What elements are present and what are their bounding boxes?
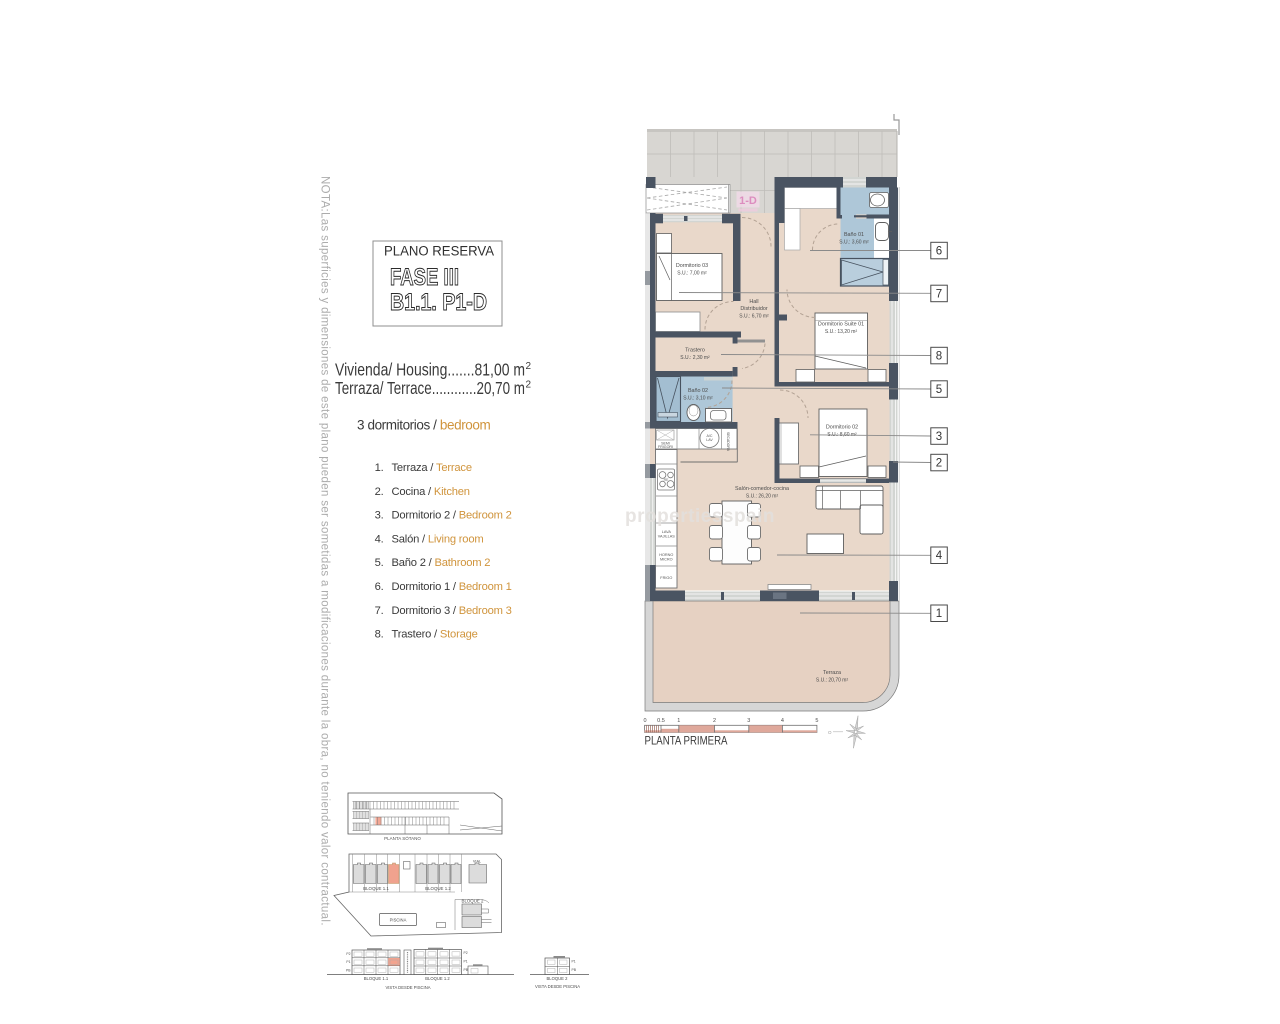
svg-text:0: 0 [643, 718, 646, 724]
svg-text:Dormitorio 2 / Bedroom 2: Dormitorio 2 / Bedroom 2 [392, 510, 512, 522]
svg-text:Terraza/ Terrace............20: Terraza/ Terrace............20,70 m [335, 378, 525, 398]
svg-text:1: 1 [677, 718, 680, 724]
svg-text:Dormitorio 02: Dormitorio 02 [826, 425, 858, 431]
svg-text:1-D: 1-D [739, 195, 757, 207]
svg-text:VISTA DESDE PISCINA: VISTA DESDE PISCINA [535, 984, 580, 989]
svg-text:BLOQUE 1.1: BLOQUE 1.1 [364, 976, 389, 981]
svg-text:B1.1. P1-D: B1.1. P1-D [390, 289, 487, 316]
svg-text:BLOQUE 1.2: BLOQUE 1.2 [425, 886, 451, 891]
svg-text:S.U.: 26,20 m²: S.U.: 26,20 m² [746, 494, 779, 500]
svg-text:4.: 4. [375, 533, 384, 545]
svg-text:P1: P1 [572, 960, 576, 964]
svg-text:6.: 6. [375, 581, 384, 593]
svg-text:Distribuidor: Distribuidor [740, 306, 767, 312]
svg-text:Salón-comedor-cocina: Salón-comedor-cocina [735, 486, 789, 492]
svg-text:VISTA DESDE PISCINA: VISTA DESDE PISCINA [385, 985, 430, 990]
svg-text:5: 5 [815, 718, 818, 724]
svg-text:P1: P1 [464, 960, 468, 964]
svg-text:Hall: Hall [749, 299, 758, 305]
svg-text:Baño 2 / Bathroom 2: Baño 2 / Bathroom 2 [392, 557, 491, 569]
svg-text:4: 4 [781, 718, 784, 724]
svg-text:P2: P2 [464, 951, 468, 955]
svg-text:BLOQUE 2: BLOQUE 2 [462, 899, 485, 904]
svg-text:2.: 2. [375, 486, 384, 498]
svg-text:P2: P2 [346, 952, 350, 956]
svg-text:7: 7 [936, 288, 942, 300]
svg-text:S.U.: 13,20 m²: S.U.: 13,20 m² [825, 329, 858, 335]
svg-text:5: 5 [936, 384, 942, 396]
svg-text:RE: RE [664, 478, 669, 482]
svg-text:PLANTA PRIMERA: PLANTA PRIMERA [645, 734, 728, 748]
svg-text:O: O [828, 730, 832, 735]
svg-text:Dormitorio Suite 01: Dormitorio Suite 01 [818, 322, 864, 328]
svg-text:Trastero: Trastero [685, 348, 705, 354]
svg-text:0.5: 0.5 [657, 718, 665, 724]
svg-text:PLANO RESERVA: PLANO RESERVA [384, 244, 494, 259]
svg-text:LAVA: LAVA [662, 530, 672, 534]
svg-text:PISCINA: PISCINA [390, 918, 407, 923]
svg-text:4: 4 [936, 550, 943, 562]
svg-text:S.U.: 6,70 m²: S.U.: 6,70 m² [739, 314, 769, 320]
svg-text:SECADORA: SECADORA [726, 432, 730, 452]
svg-text:FRIGO: FRIGO [660, 576, 672, 580]
svg-text:VAJILLAS: VAJILLAS [658, 535, 675, 539]
svg-text:Dormitorio 1 / Bedroom 1: Dormitorio 1 / Bedroom 1 [392, 581, 512, 593]
svg-text:BLOQUE 2: BLOQUE 2 [547, 976, 569, 981]
svg-text:5.: 5. [375, 557, 384, 569]
svg-text:2: 2 [526, 380, 532, 391]
svg-text:Vivienda/ Housing.......81,00: Vivienda/ Housing.......81,00 m [335, 360, 525, 380]
svg-text:BLOQUE 1.2: BLOQUE 1.2 [425, 976, 450, 981]
svg-text:Dormitorio 3 / Bedroom 3: Dormitorio 3 / Bedroom 3 [392, 605, 512, 617]
svg-text:PB: PB [346, 969, 351, 973]
svg-text:3.: 3. [375, 510, 384, 522]
svg-text:BLOQUE 1.1: BLOQUE 1.1 [363, 886, 389, 891]
svg-text:S.U.: 2,30 m²: S.U.: 2,30 m² [680, 355, 710, 361]
svg-text:8: 8 [936, 351, 942, 363]
svg-text:Salón / Living room: Salón / Living room [392, 533, 484, 545]
svg-text:propertiesspain: propertiesspain [625, 506, 775, 527]
svg-text:S.U.: 3,10 m²: S.U.: 3,10 m² [683, 396, 713, 402]
svg-text:1.: 1. [375, 462, 384, 474]
svg-text:S.U.: 7,00 m²: S.U.: 7,00 m² [677, 271, 707, 277]
svg-text:2: 2 [936, 458, 942, 470]
svg-text:FASE III: FASE III [390, 264, 459, 291]
svg-text:Baño 02: Baño 02 [688, 388, 708, 394]
svg-text:3 dormitorios / bedroom: 3 dormitorios / bedroom [357, 418, 491, 433]
svg-text:8.: 8. [375, 629, 384, 641]
svg-text:6: 6 [936, 246, 942, 258]
svg-text:LAV: LAV [706, 438, 713, 442]
svg-text:NOTA:Las superficies y dimensi: NOTA:Las superficies y dimensiones de es… [319, 176, 331, 926]
svg-text:7.: 7. [375, 605, 384, 617]
svg-text:S.U.: 3,60 m²: S.U.: 3,60 m² [839, 240, 869, 246]
svg-text:3: 3 [936, 431, 942, 443]
svg-text:1: 1 [936, 608, 942, 620]
svg-text:Terraza / Terrace: Terraza / Terrace [392, 462, 472, 474]
svg-text:2: 2 [713, 718, 716, 724]
svg-text:P1: P1 [346, 960, 350, 964]
svg-text:PLANTA SÓTANO: PLANTA SÓTANO [384, 835, 421, 841]
svg-text:HORNO: HORNO [659, 553, 673, 557]
svg-text:VIAL: VIAL [473, 860, 481, 864]
svg-text:Dormitorio 03: Dormitorio 03 [676, 263, 708, 269]
svg-text:Terraza: Terraza [823, 670, 841, 676]
svg-text:Trastero / Storage: Trastero / Storage [392, 629, 478, 641]
svg-text:S.U.: 20,70 m²: S.U.: 20,70 m² [816, 678, 849, 684]
svg-text:Cocina / Kitchen: Cocina / Kitchen [392, 486, 470, 498]
svg-text:3: 3 [747, 718, 750, 724]
svg-text:2: 2 [526, 361, 532, 372]
svg-text:Baño 01: Baño 01 [844, 232, 864, 238]
svg-text:PB: PB [572, 968, 577, 972]
svg-text:MICRO: MICRO [660, 558, 673, 562]
svg-text:FRIGORI: FRIGORI [658, 445, 673, 449]
